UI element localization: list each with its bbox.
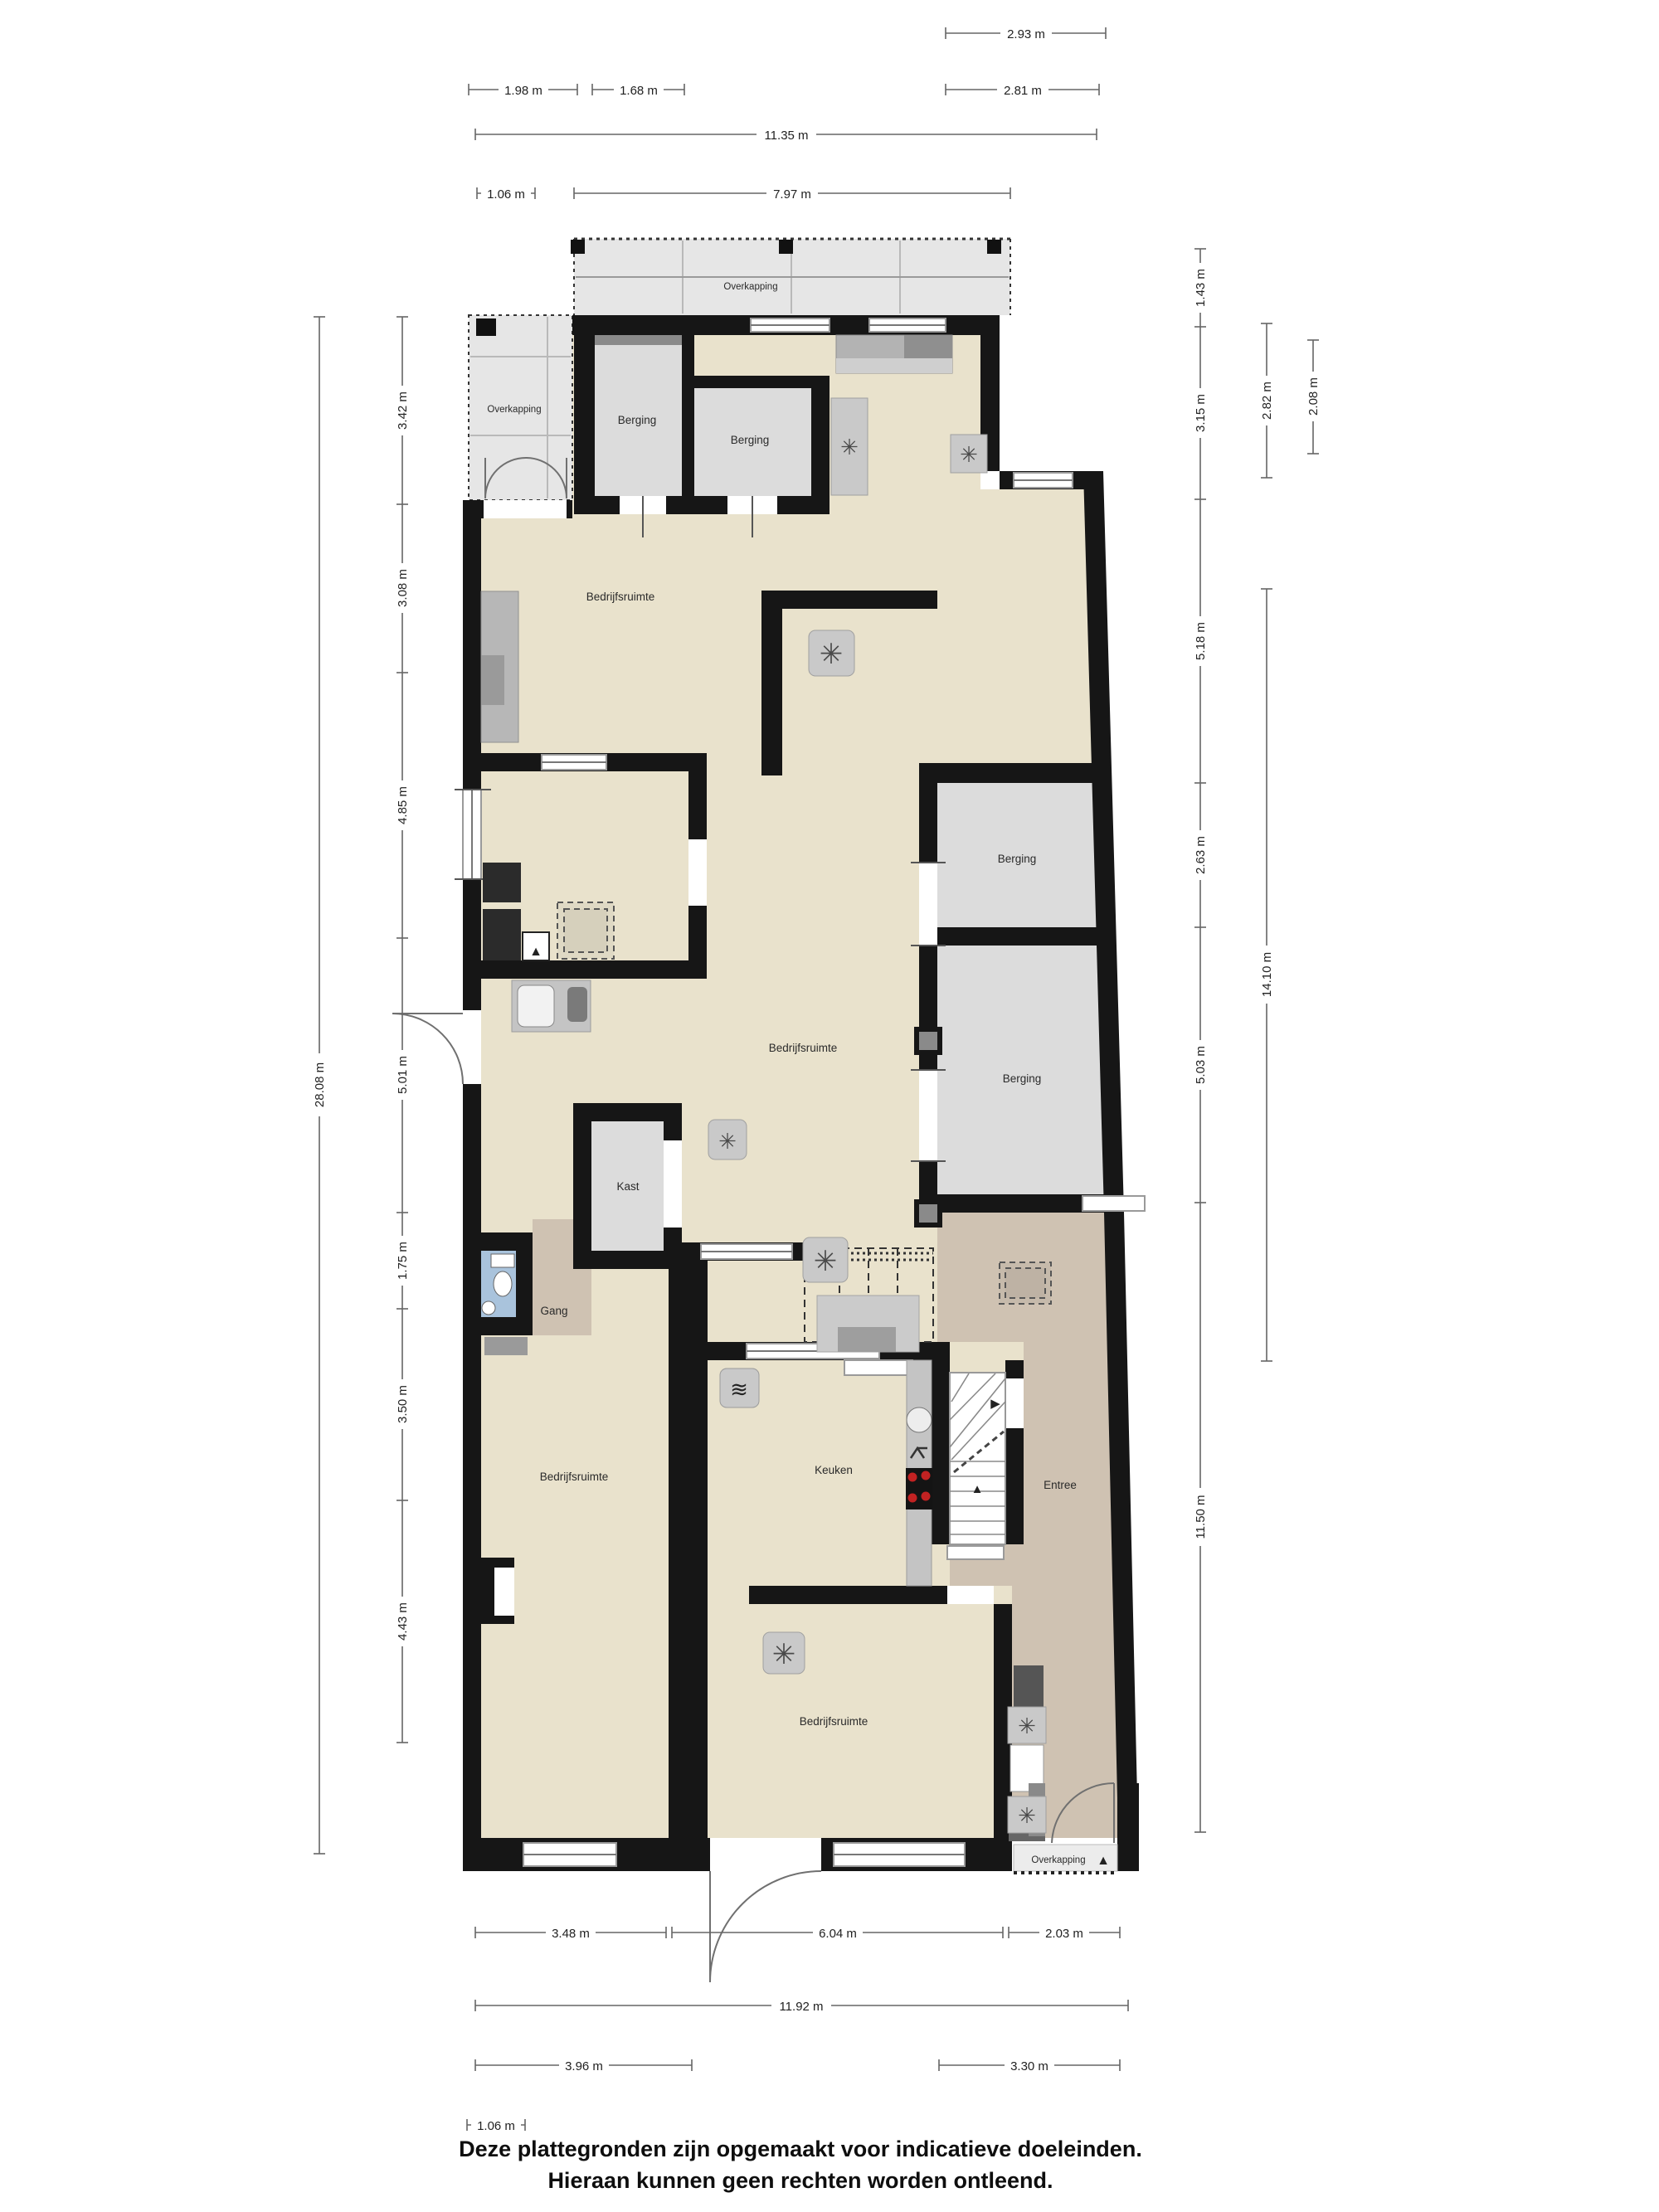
fan-icon: ✳ — [840, 435, 859, 459]
floorplan-canvas: ▶ ▲ ▲ — [0, 0, 1659, 2212]
svg-text:11.50 m: 11.50 m — [1194, 1495, 1208, 1539]
fan-icon: ✳ — [708, 1120, 747, 1159]
svg-text:4.85 m: 4.85 m — [396, 786, 410, 824]
dim-right-143: 1.43 m — [1191, 249, 1209, 327]
svg-text:1.98 m: 1.98 m — [504, 84, 542, 98]
svg-text:✳: ✳ — [960, 442, 978, 467]
door-arc — [710, 1871, 821, 1982]
dim-left-501: 5.01 m — [393, 938, 411, 1213]
room-label-keuken: Keuken — [815, 1464, 853, 1476]
room-label-bedrijfsruimte-4: Bedrijfsruimte — [800, 1715, 868, 1728]
disclaimer-line-1: Deze plattegronden zijn opgemaakt voor i… — [459, 2137, 1142, 2161]
dim-right-208: 2.08 m — [1304, 340, 1322, 454]
dim-left-2808: 28.08 m — [310, 317, 328, 1854]
mattress-pillow — [838, 1327, 896, 1352]
svg-text:14.10 m: 14.10 m — [1260, 952, 1274, 997]
svg-text:3.08 m: 3.08 m — [396, 569, 410, 607]
dim-right-263: 2.63 m — [1191, 783, 1209, 927]
flame-icon: ▲ — [529, 945, 542, 959]
stove-block — [483, 863, 521, 902]
svg-text:1.06 m: 1.06 m — [487, 187, 525, 202]
cabinet-light — [836, 358, 952, 373]
dim-bottom-203: 2.03 m — [1009, 1923, 1120, 1942]
svg-text:3.30 m: 3.30 m — [1010, 2059, 1048, 2073]
svg-text:2.08 m: 2.08 m — [1306, 377, 1321, 416]
room-label-berging-1: Berging — [618, 414, 657, 426]
svg-text:2.63 m: 2.63 m — [1194, 836, 1208, 874]
dim-left-308: 3.08 m — [393, 504, 411, 673]
svg-text:11.35 m: 11.35 m — [764, 129, 808, 143]
room-label-overkapping-top: Overkapping — [723, 282, 777, 292]
dim-bottom-348: 3.48 m — [475, 1923, 666, 1942]
dim-top-168: 1.68 m — [592, 80, 684, 99]
svg-text:2.93 m: 2.93 m — [1007, 27, 1045, 41]
room-label-berging-2: Berging — [731, 434, 770, 446]
canopy-post — [987, 240, 1001, 254]
svg-text:3.96 m: 3.96 m — [565, 2059, 603, 2073]
dim-bottom-106: 1.06 m — [467, 2116, 525, 2134]
kitchen-sink — [907, 1407, 932, 1432]
dim-left-342: 3.42 m — [393, 317, 411, 504]
svg-text:1.68 m: 1.68 m — [620, 84, 658, 98]
room-label-bedrijfsruimte-3: Bedrijfsruimte — [540, 1471, 609, 1483]
svg-text:3.15 m: 3.15 m — [1194, 394, 1208, 432]
dim-right-1150: 11.50 m — [1191, 1203, 1209, 1832]
svg-text:4.43 m: 4.43 m — [396, 1602, 410, 1641]
svg-text:2.82 m: 2.82 m — [1260, 382, 1274, 420]
svg-text:1.06 m: 1.06 m — [477, 2119, 515, 2133]
niche-inner — [494, 1568, 514, 1616]
fan-icon: ✳ — [809, 630, 854, 676]
water-jug — [567, 987, 587, 1022]
dim-top-293: 2.93 m — [946, 24, 1106, 42]
canopy-post — [779, 240, 793, 254]
dim-top-198: 1.98 m — [469, 80, 577, 99]
roof-arrow-icon: ▲ — [1097, 1854, 1110, 1868]
svg-text:5.03 m: 5.03 m — [1194, 1046, 1208, 1084]
svg-text:2.81 m: 2.81 m — [1004, 84, 1042, 98]
dim-left-350: 3.50 m — [393, 1309, 411, 1500]
svg-text:✳: ✳ — [840, 435, 859, 459]
room-label-berging-right-b: Berging — [1003, 1072, 1042, 1085]
dim-bottom-1192: 11.92 m — [475, 1996, 1128, 2015]
fan-icon: ✳ — [1008, 1796, 1046, 1833]
svg-text:11.92 m: 11.92 m — [779, 2000, 823, 2014]
svg-text:✳: ✳ — [814, 1246, 838, 1277]
fan-icon: ✳ — [1008, 1707, 1046, 1743]
stair-arrow-right-icon: ▶ — [990, 1397, 1000, 1411]
wall-pillar-core — [919, 1204, 937, 1223]
svg-text:✳: ✳ — [1018, 1803, 1036, 1828]
fan-icon: ✳ — [951, 435, 987, 473]
sink — [518, 985, 554, 1027]
dim-right-518: 5.18 m — [1191, 499, 1209, 783]
dim-bottom-396: 3.96 m — [475, 2056, 692, 2074]
overkapping-bottom-area: Overkapping ▲ — [1014, 1845, 1117, 1873]
fan-icon: ✳ — [763, 1632, 805, 1674]
room-label-berging-right-a: Berging — [998, 853, 1037, 865]
floor-berging-right-b — [937, 946, 1107, 1194]
doormat — [484, 1337, 528, 1355]
cabinet-dark — [904, 335, 952, 358]
stair-arrow-up-icon: ▲ — [971, 1482, 984, 1496]
svg-text:5.01 m: 5.01 m — [396, 1056, 410, 1094]
floor-entree-mid — [1024, 1342, 1117, 1586]
dim-left-485: 4.85 m — [393, 673, 411, 938]
svg-text:✳: ✳ — [1018, 1714, 1036, 1738]
dim-left-443: 4.43 m — [393, 1500, 411, 1743]
canopy-post — [571, 240, 585, 254]
fan-icon: ✳ — [803, 1237, 848, 1282]
dim-top-106: 1.06 m — [477, 184, 535, 202]
dim-bottom-604: 6.04 m — [672, 1923, 1003, 1942]
oven-icon: ≋ — [730, 1377, 748, 1402]
stove-block — [483, 909, 521, 960]
canopy-post — [476, 318, 496, 336]
room-label-overkapping-bottom: Overkapping — [1031, 1855, 1085, 1865]
svg-text:1.43 m: 1.43 m — [1194, 269, 1208, 307]
berging-1-shelf — [595, 335, 682, 345]
floorplan-page: ▶ ▲ ▲ — [0, 0, 1659, 2212]
room-label-entree: Entree — [1044, 1479, 1077, 1491]
dim-right-1410: 14.10 m — [1258, 589, 1276, 1361]
dim-right-503: 5.03 m — [1191, 927, 1209, 1203]
room-label-bedrijfsruimte-1: Bedrijfsruimte — [586, 591, 655, 603]
dim-left-175: 1.75 m — [393, 1213, 411, 1309]
disclaimer: Deze plattegronden zijn opgemaakt voor i… — [459, 2137, 1142, 2193]
room-label-overkapping-left: Overkapping — [487, 405, 541, 415]
room-label-gang: Gang — [540, 1305, 567, 1317]
svg-text:3.48 m: 3.48 m — [552, 1927, 590, 1941]
dim-right-282: 2.82 m — [1258, 323, 1276, 478]
svg-text:✳: ✳ — [772, 1639, 796, 1670]
wall-pillar-core — [919, 1032, 937, 1050]
staircase: ▶ ▲ — [950, 1373, 1005, 1544]
svg-text:2.03 m: 2.03 m — [1045, 1927, 1083, 1941]
room-label-kast: Kast — [616, 1180, 639, 1193]
svg-text:3.50 m: 3.50 m — [396, 1385, 410, 1423]
svg-text:6.04 m: 6.04 m — [819, 1927, 857, 1941]
dim-right-315: 3.15 m — [1191, 327, 1209, 499]
dim-top-281: 2.81 m — [946, 80, 1099, 99]
dim-top-1135: 11.35 m — [475, 125, 1097, 143]
disclaimer-line-2: Hieraan kunnen geen rechten worden ontle… — [547, 2168, 1053, 2193]
svg-text:5.18 m: 5.18 m — [1194, 622, 1208, 660]
dim-bottom-330: 3.30 m — [939, 2056, 1120, 2074]
svg-text:3.42 m: 3.42 m — [396, 391, 410, 430]
dim-top-797: 7.97 m — [574, 184, 1010, 202]
svg-text:28.08 m: 28.08 m — [313, 1062, 327, 1107]
room-label-bedrijfsruimte-2: Bedrijfsruimte — [769, 1042, 838, 1054]
svg-text:1.75 m: 1.75 m — [396, 1242, 410, 1280]
svg-text:✳: ✳ — [718, 1129, 737, 1154]
svg-text:7.97 m: 7.97 m — [773, 187, 811, 202]
overkapping-top-area — [571, 239, 1010, 315]
svg-text:✳: ✳ — [820, 639, 844, 670]
dark-cabinet — [1014, 1665, 1044, 1709]
